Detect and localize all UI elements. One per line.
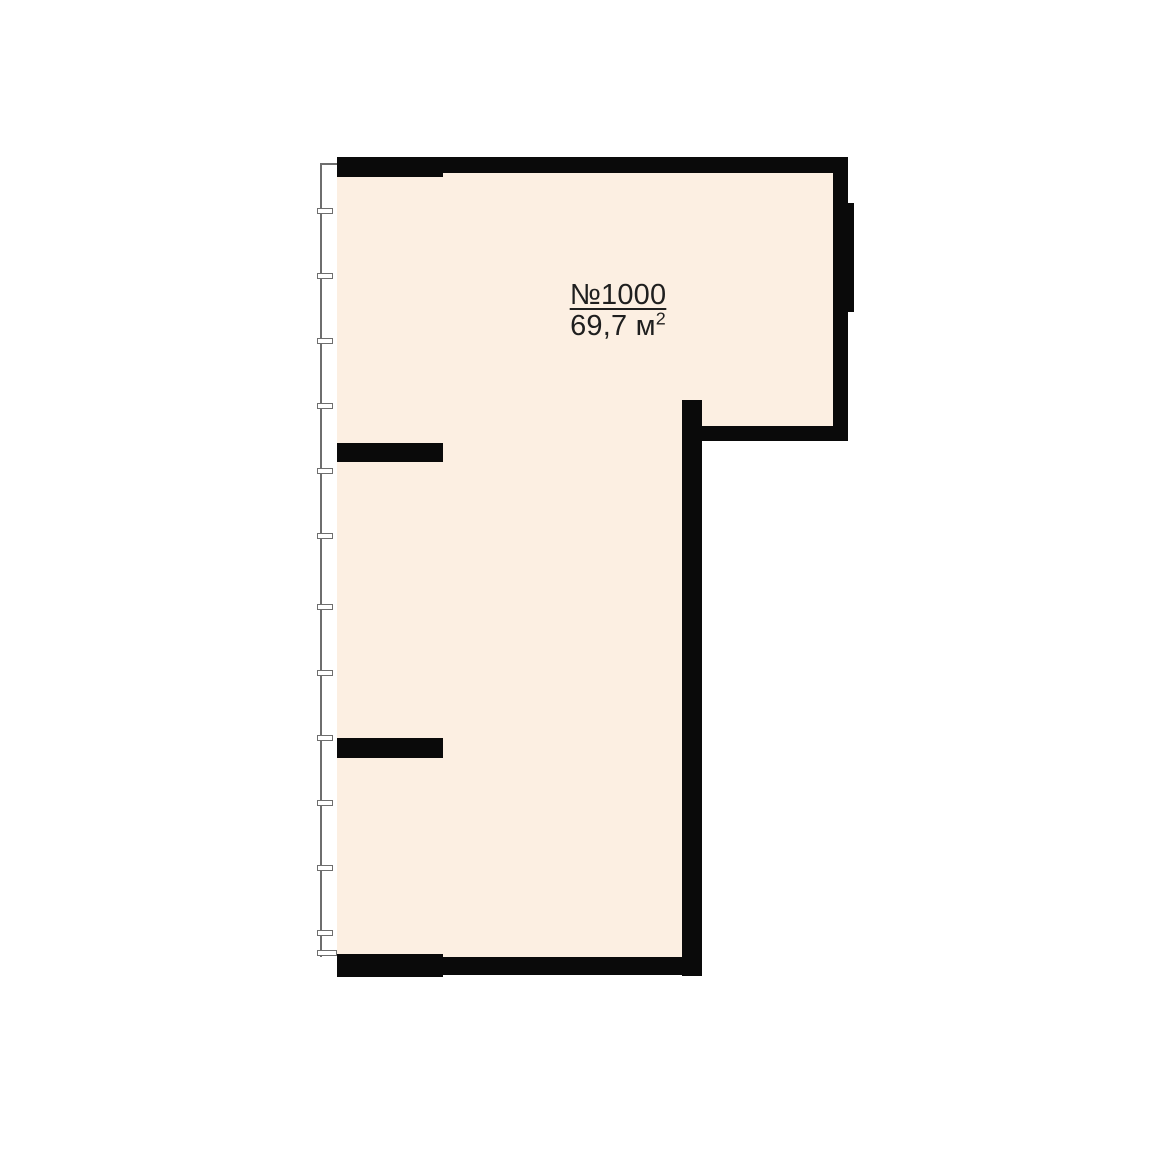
window-tick — [317, 604, 333, 610]
window-tick — [317, 865, 333, 871]
wall-right — [833, 157, 848, 441]
wall-stub-upper — [337, 443, 443, 462]
wall-right-pilaster — [848, 203, 854, 312]
unit-area-label: 69,7 м2 — [528, 311, 708, 342]
floor-area-main — [337, 420, 690, 960]
floorplan: №1000 69,7 м2 — [0, 0, 1156, 1164]
window-tick — [317, 208, 333, 214]
window-tick — [317, 930, 333, 936]
wall-stub-lower — [337, 738, 443, 758]
wall-bottom-right — [443, 957, 702, 975]
window-tick — [317, 468, 333, 474]
wall-bottom-left — [337, 954, 443, 977]
window-tick — [317, 735, 333, 741]
unit-area-value: 69,7 м — [570, 310, 656, 342]
glazing-cap-top — [320, 163, 337, 165]
window-tick — [317, 533, 333, 539]
wall-top-right — [443, 157, 848, 173]
unit-area-superscript: 2 — [656, 308, 666, 328]
window-tick — [317, 800, 333, 806]
unit-number-link[interactable]: №1000 — [528, 280, 708, 311]
glazing-cap-bottom — [317, 950, 337, 956]
wall-divider-horizontal — [700, 426, 848, 441]
window-tick — [317, 403, 333, 409]
wall-interior-vertical — [682, 400, 702, 976]
glazing-line — [320, 163, 322, 957]
unit-label: №1000 69,7 м2 — [528, 280, 708, 342]
wall-top-left — [337, 157, 443, 177]
window-tick — [317, 338, 333, 344]
window-tick — [317, 273, 333, 279]
window-tick — [317, 670, 333, 676]
